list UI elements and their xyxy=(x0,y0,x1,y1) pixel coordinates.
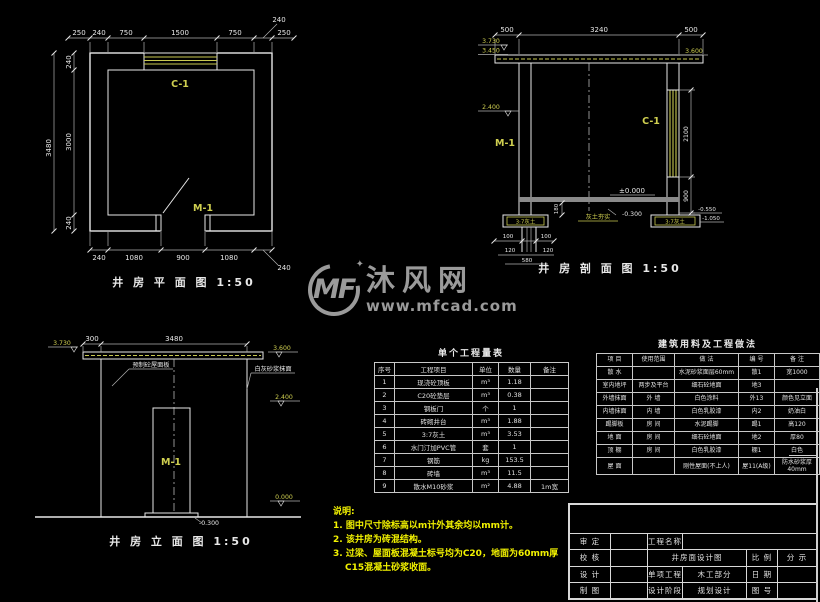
svg-text:3480: 3480 xyxy=(165,335,183,343)
sheet-border-right xyxy=(816,388,818,602)
svg-text:-0.300: -0.300 xyxy=(199,520,219,527)
tb-scale-label: 比 例 xyxy=(746,549,777,565)
watermark-name: 沐风网 xyxy=(366,266,518,295)
svg-text:±0.000: ±0.000 xyxy=(619,187,645,195)
plan-view: 250 240 750 1500 750 240 250 3480 240 30… xyxy=(32,8,312,300)
svg-text:3240: 3240 xyxy=(590,26,608,34)
table-row: 9散水M10砂浆m²4.881m宽 xyxy=(375,480,569,493)
svg-text:100: 100 xyxy=(503,234,514,240)
svg-text:3480: 3480 xyxy=(45,139,53,157)
hatch-label-center: 灰土夯实 xyxy=(586,213,611,221)
svg-text:240: 240 xyxy=(277,264,290,272)
table-row: 地 面房 间细石砼地面地2厚80 xyxy=(597,432,820,445)
table-row: 室内地坪两步及平台细石砼地面地3 xyxy=(597,380,820,393)
table-row: 散 水水泥砂浆面层60mm散1宽1000 xyxy=(597,367,820,380)
svg-text:3.730: 3.730 xyxy=(53,340,71,347)
note-wall: 白灰砂浆抹面 xyxy=(254,365,291,373)
note-roof: 预制砼屋面板 xyxy=(132,361,169,369)
table-row: 8砖墙m³11.5 xyxy=(375,467,569,480)
table-row: 7钢筋kg153.5 xyxy=(375,454,569,467)
svg-text:240: 240 xyxy=(65,216,73,229)
tb-zhitu: 制 图 xyxy=(570,582,610,598)
svg-text:300: 300 xyxy=(85,335,98,343)
elevation-structure xyxy=(35,352,301,517)
title-block-top-space xyxy=(570,505,816,533)
table-header-row: 序号 工程项目 单位 数量 备注 xyxy=(375,363,569,376)
svg-text:120: 120 xyxy=(505,248,516,254)
table-row: 屋 面刚性屋面(不上人)屋11(A级)防水砂浆厚40mm xyxy=(597,458,820,475)
svg-text:-0.300: -0.300 xyxy=(622,211,642,218)
svg-text:3.600: 3.600 xyxy=(273,345,291,352)
table-row: 2C20砼垫层m³0.38 xyxy=(375,389,569,402)
cad-sheet: 250 240 750 1500 750 240 250 3480 240 30… xyxy=(0,0,820,602)
svg-text:1080: 1080 xyxy=(220,254,238,262)
svg-text:500: 500 xyxy=(684,26,697,34)
table-row: 踢脚板房 间水泥踢脚踢1高120 xyxy=(597,419,820,432)
svg-text:900: 900 xyxy=(683,190,690,202)
svg-text:250: 250 xyxy=(277,29,290,37)
table-row: 4砖砌井台m³1.88 xyxy=(375,415,569,428)
svg-text:1500: 1500 xyxy=(171,29,189,37)
svg-text:240: 240 xyxy=(65,55,73,68)
svg-text:100: 100 xyxy=(541,234,552,240)
svg-text:240: 240 xyxy=(92,254,105,262)
svg-text:1080: 1080 xyxy=(125,254,143,262)
window-label: C-1 xyxy=(642,116,660,127)
tb-shending: 审 定 xyxy=(570,533,610,549)
notes-heading: 说明: xyxy=(333,506,575,520)
table-row: 外墙抹面外 墙白色涂料外13颜色见立面 xyxy=(597,393,820,406)
elevation-dimensions: 300 3480 xyxy=(81,335,250,352)
svg-text:0.000: 0.000 xyxy=(275,494,293,501)
hatch-label-right: 3:7灰土 xyxy=(665,218,685,226)
tb-danxiang: 单项工程 xyxy=(647,566,682,582)
svg-text:3.600: 3.600 xyxy=(685,48,703,55)
table-row: 53:7灰土m³3.53 xyxy=(375,428,569,441)
tb-drawing-name: 井房面设计图 xyxy=(647,549,746,565)
door-label: M-1 xyxy=(495,138,515,149)
tb-jieduan: 设计阶段 xyxy=(647,582,682,598)
elevation-title: 井 房 立 面 图 1:50 xyxy=(109,534,253,548)
svg-text:240: 240 xyxy=(272,16,285,24)
section-labels: M-1 C-1 3:7灰土 3:7灰土 灰土夯实 井 房 剖 面 图 1:50 xyxy=(495,116,695,275)
tb-sheji: 设 计 xyxy=(570,566,610,582)
svg-text:180: 180 xyxy=(554,203,560,214)
svg-text:750: 750 xyxy=(228,29,241,37)
materials-table: 建筑用料及工程做法 项 目 使用范围 做 法 编 号 备 注 散 水水泥砂浆面层… xyxy=(596,337,819,475)
table-row: 内墙抹面内 墙白色乳胶漆内2奶油白 xyxy=(597,406,820,419)
mf-logo-icon: MF ✦ xyxy=(308,264,360,316)
materials-table-title: 建筑用料及工程做法 xyxy=(596,337,819,350)
svg-text:250: 250 xyxy=(72,29,85,37)
section-title: 井 房 剖 面 图 1:50 xyxy=(538,261,682,275)
table-row: 3钢板门个1 xyxy=(375,402,569,415)
tb-jiaohe: 校 核 xyxy=(570,549,610,565)
door-label: M-1 xyxy=(161,457,181,468)
watermark: MF ✦ 沐风网 www.mfcad.com xyxy=(308,264,518,316)
svg-text:3.730: 3.730 xyxy=(482,38,500,45)
plan-title: 井 房 平 面 图 1:50 xyxy=(112,275,256,289)
notes: 说明: 1. 图中尺寸除标高以m计外其余均以mm计。 2. 该井房为砖混结构。 … xyxy=(333,506,575,576)
tb-project-name-label: 工程名称 xyxy=(647,533,682,549)
note-item: 3. 过梁、屋面板混凝土标号均为C20，地面为60mm厚C15混凝土砂浆收面。 xyxy=(333,548,575,576)
table-row: 顶 棚房 间白色乳胶漆棚1白色 xyxy=(597,445,820,458)
title-block: 审 定 工程名称 校 核 井房面设计图 比 例 分 示 设 计 单项工程 木工部… xyxy=(568,503,818,600)
window-label: C-1 xyxy=(171,79,189,90)
table-row: 1现浇砼顶板m³1.18 xyxy=(375,376,569,389)
svg-text:240: 240 xyxy=(92,29,105,37)
svg-text:2.400: 2.400 xyxy=(482,104,500,111)
watermark-url: www.mfcad.com xyxy=(366,297,518,315)
svg-text:3.450: 3.450 xyxy=(482,48,500,55)
svg-text:900: 900 xyxy=(176,254,189,262)
svg-text:3000: 3000 xyxy=(65,133,73,151)
tb-guihua: 规划设计 xyxy=(682,582,746,598)
hatch-label-left: 3:7灰土 xyxy=(516,218,536,226)
sheet-border-tick xyxy=(789,455,818,456)
section-view: 500 3240 500 2100 900 180 100 100 120 xyxy=(458,16,758,286)
tb-fenshi-label: 分 示 xyxy=(777,549,816,565)
note-item: 2. 该井房为砖混结构。 xyxy=(333,534,575,548)
tb-mugong: 木工部分 xyxy=(682,566,746,582)
tb-number-label: 图 号 xyxy=(746,582,777,598)
tb-date-label: 日 期 xyxy=(746,566,777,582)
svg-text:2100: 2100 xyxy=(683,126,690,142)
elevation-view: 300 3480 3.730 3.600 2.400 0.000 -0.300 … xyxy=(33,333,328,557)
quantity-table: 单个工程量表 序号 工程项目 单位 数量 备注 1现浇砼顶板m³1.18 2C2… xyxy=(374,346,568,493)
svg-text:-0.550: -0.550 xyxy=(698,207,716,213)
table-row: 6水门汀加PVC管套1 xyxy=(375,441,569,454)
door-label: M-1 xyxy=(193,203,213,214)
svg-text:120: 120 xyxy=(543,248,554,254)
quantity-table-title: 单个工程量表 xyxy=(374,346,568,359)
table-header-row: 项 目 使用范围 做 法 编 号 备 注 xyxy=(597,354,820,367)
note-item: 1. 图中尺寸除标高以m计外其余均以mm计。 xyxy=(333,520,575,534)
svg-text:580: 580 xyxy=(522,258,533,264)
svg-text:750: 750 xyxy=(119,29,132,37)
svg-text:-1.050: -1.050 xyxy=(702,216,720,222)
svg-text:2.400: 2.400 xyxy=(275,394,293,401)
svg-text:500: 500 xyxy=(500,26,513,34)
sparkle-icon: ✦ xyxy=(356,259,364,270)
